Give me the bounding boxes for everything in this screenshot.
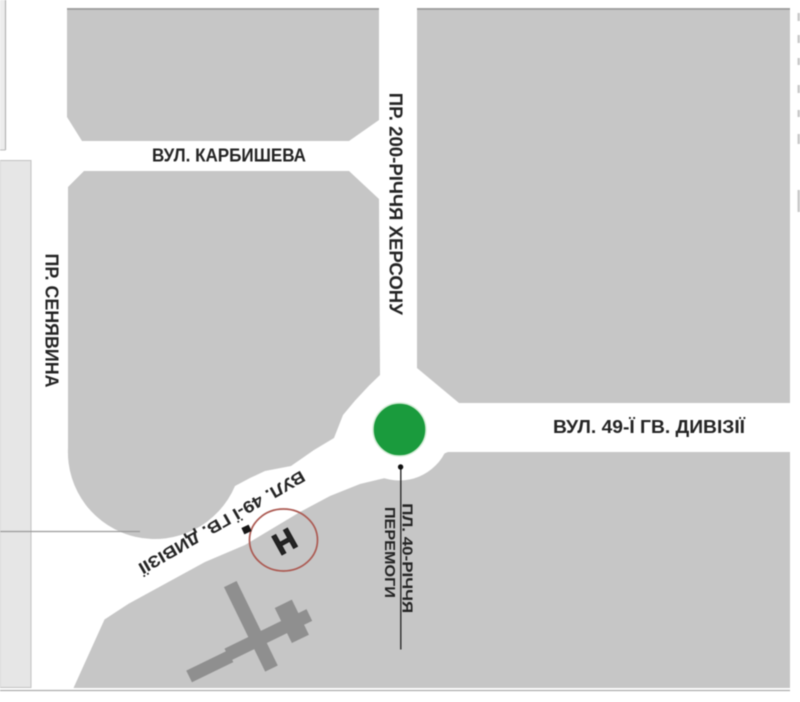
svg-text:ПР. СЕНЯВИНА: ПР. СЕНЯВИНА bbox=[42, 254, 63, 388]
svg-text:ПЛ. 40-РІЧЧЯ: ПЛ. 40-РІЧЧЯ bbox=[398, 503, 415, 613]
svg-text:ВУЛ. КАРБИШЕВА: ВУЛ. КАРБИШЕВА bbox=[152, 145, 306, 166]
svg-text:ПЕРЕМОГИ: ПЕРЕМОГИ bbox=[381, 507, 398, 598]
svg-text:ПР. 200-РІЧЧЯ ХЕРСОНУ: ПР. 200-РІЧЧЯ ХЕРСОНУ bbox=[385, 93, 405, 316]
svg-text:ВУЛ. 49-Ї ГВ. ДИВІЗІЇ: ВУЛ. 49-Ї ГВ. ДИВІЗІЇ bbox=[553, 417, 746, 437]
